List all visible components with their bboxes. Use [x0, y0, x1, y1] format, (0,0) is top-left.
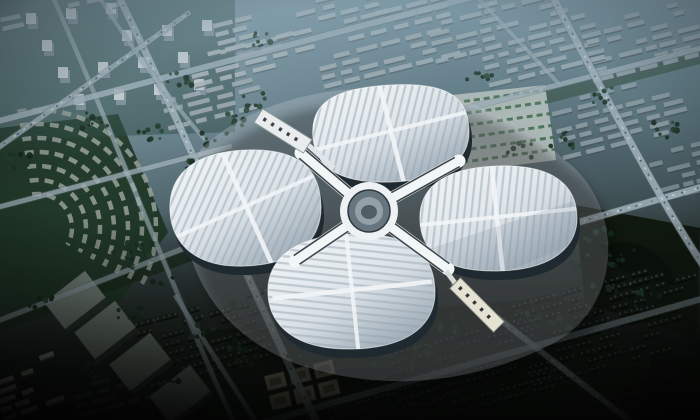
corner-vignette [0, 0, 700, 420]
aerial-rendering [0, 0, 700, 420]
scene-canvas [0, 0, 700, 420]
